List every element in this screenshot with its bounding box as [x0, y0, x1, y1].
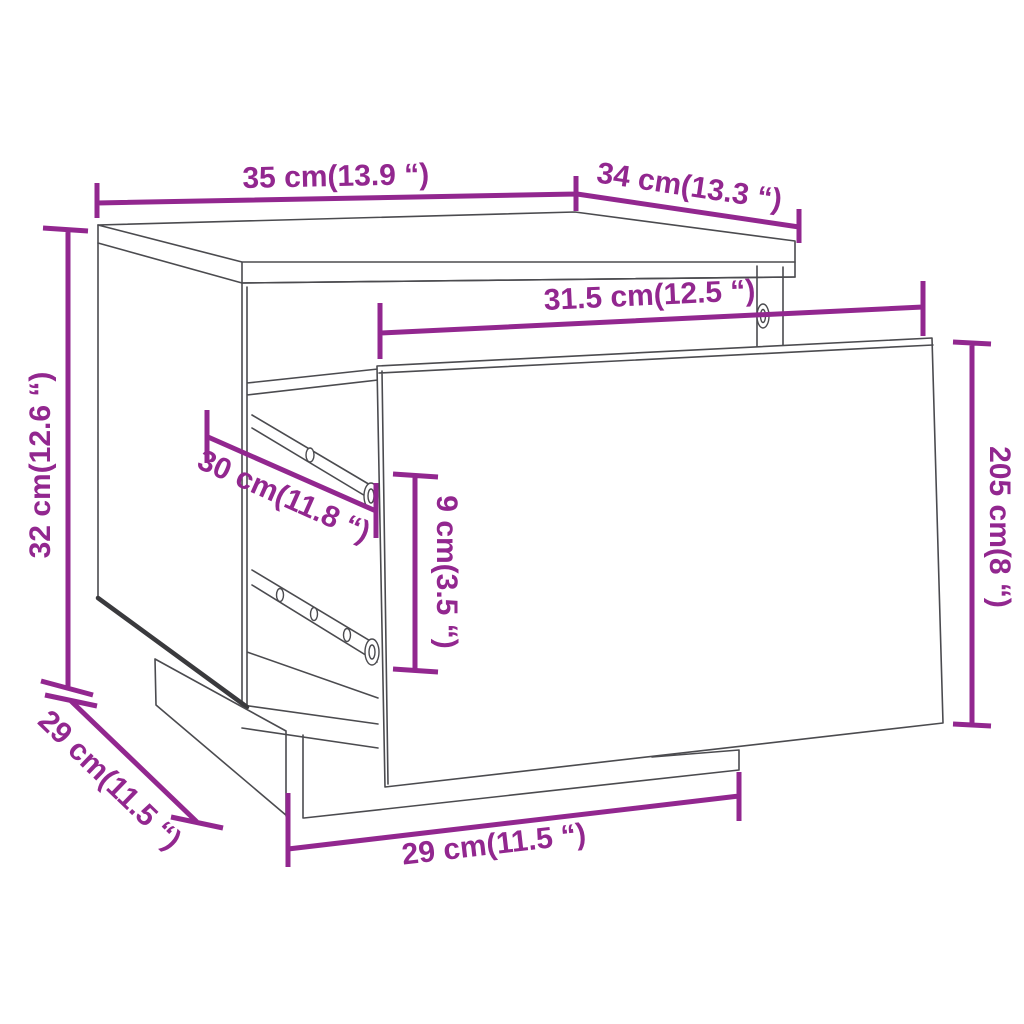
screw-icon [306, 448, 314, 462]
screw-icon [311, 608, 318, 621]
nightstand-dimension-drawing: 35 cm(13.9 “) 34 cm(13.3 “) 31.5 cm(12.5… [0, 0, 1024, 1024]
dim-drawer-front-height-label: 205 cm(8 “) [983, 446, 1016, 608]
product-dimension-diagram: 35 cm(13.9 “) 34 cm(13.3 “) 31.5 cm(12.5… [0, 0, 1024, 1024]
nightstand-drawing [98, 212, 943, 818]
cam-screw-icon [369, 645, 375, 659]
screw-icon [344, 629, 351, 642]
dim-drawer-front-width-label: 31.5 cm(12.5 “) [543, 274, 756, 317]
top-panel-silhouette [98, 212, 795, 283]
screw-icon [277, 589, 284, 602]
dim-base-depth-label: 29 cm(11.5 “) [32, 704, 188, 856]
dim-drawer-inner-height-label: 9 cm(3.5 “) [430, 495, 463, 648]
dim-top-width-label: 35 cm(13.9 “) [242, 158, 429, 195]
cam-screw-icon [368, 489, 374, 503]
side-panel-bottom-edge [98, 598, 247, 707]
top-panel [98, 212, 795, 283]
dim-overall-height-label: 32 cm(12.6 “) [24, 372, 57, 559]
dim-top-depth-label: 34 cm(13.3 “) [595, 156, 785, 216]
